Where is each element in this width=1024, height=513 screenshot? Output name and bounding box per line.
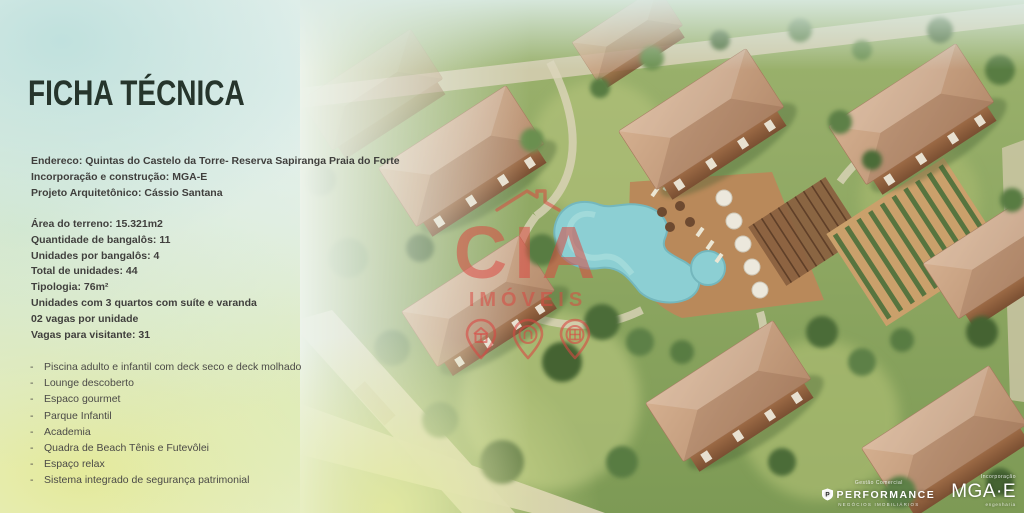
amenity-item: -Lounge descoberto [30, 377, 410, 393]
total-units-line: Total de unidades: 44 [31, 265, 431, 281]
amenity-label: Parque Infantil [44, 410, 112, 426]
amenity-bullet: - [30, 426, 44, 442]
amenity-bullet: - [30, 361, 44, 377]
amenity-bullet: - [30, 410, 44, 426]
amenity-item: -Espaco gourmet [30, 393, 410, 409]
amenity-bullet: - [30, 474, 44, 490]
footer-logos: Gestão Comercial P PERFORMANCE NEGÓCIOS … [822, 474, 1016, 507]
performance-caption: Gestão Comercial [822, 480, 935, 486]
units-per-bungalow-line: Unidades por bangalôs: 4 [31, 250, 431, 266]
project-identity-block: Endereco: Quintas do Castelo da Torre- R… [31, 155, 431, 202]
visitor-parking-line: Vagas para visitante: 31 [31, 329, 431, 345]
amenity-label: Espaco gourmet [44, 393, 120, 409]
project-specs-block: Área do terreno: 15.321m2 Quantidade de … [31, 218, 431, 344]
address-line: Endereco: Quintas do Castelo da Torre- R… [31, 155, 431, 171]
amenity-item: -Piscina adulto e infantil com deck seco… [30, 361, 410, 377]
amenity-label: Sistema integrado de segurança patrimoni… [44, 474, 249, 490]
land-area-line: Área do terreno: 15.321m2 [31, 218, 431, 234]
performance-name: PERFORMANCE [836, 489, 935, 501]
amenity-item: -Sistema integrado de segurança patrimon… [30, 474, 410, 490]
performance-logo: Gestão Comercial P PERFORMANCE NEGÓCIOS … [822, 480, 935, 507]
amenity-bullet: - [30, 377, 44, 393]
mgae-logo: Incorporação MGA·E engenharia [951, 474, 1016, 507]
typology-line: Tipologia: 76m² [31, 281, 431, 297]
svg-text:P: P [826, 491, 831, 498]
amenity-label: Quadra de Beach Tênis e Futevôlei [44, 442, 209, 458]
amenity-label: Espaço relax [44, 458, 105, 474]
amenity-item: -Parque Infantil [30, 410, 410, 426]
amenity-bullet: - [30, 393, 44, 409]
amenity-item: -Quadra de Beach Tênis e Futevôlei [30, 442, 410, 458]
unit-rooms-line: Unidades com 3 quartos com suíte e varan… [31, 297, 431, 313]
amenity-label: Lounge descoberto [44, 377, 134, 393]
shield-icon: P [822, 488, 833, 501]
amenity-bullet: - [30, 458, 44, 474]
amenity-bullet: - [30, 442, 44, 458]
amenity-label: Piscina adulto e infantil com deck seco … [44, 361, 301, 377]
parking-line: 02 vagas por unidade [31, 313, 431, 329]
performance-tagline: NEGÓCIOS IMOBILIÁRIOS [822, 502, 935, 507]
bungalow-count-line: Quantidade de bangalôs: 11 [31, 234, 431, 250]
amenity-item: -Espaço relax [30, 458, 410, 474]
page-title: FICHA TÉCNICA [28, 74, 245, 114]
amenity-label: Academia [44, 426, 91, 442]
developer-line: Incorporação e construção: MGA-E [31, 171, 431, 187]
architect-line: Projeto Arquitetônico: Cássio Santana [31, 187, 431, 203]
spec-panel: FICHA TÉCNICA Endereco: Quintas do Caste… [0, 0, 420, 513]
mgae-caption: Incorporação [951, 474, 1016, 480]
mgae-tagline: engenharia [951, 502, 1016, 507]
mgae-name: MGA·E [951, 482, 1016, 501]
amenities-list: -Piscina adulto e infantil com deck seco… [30, 361, 410, 491]
amenity-item: -Academia [30, 426, 410, 442]
